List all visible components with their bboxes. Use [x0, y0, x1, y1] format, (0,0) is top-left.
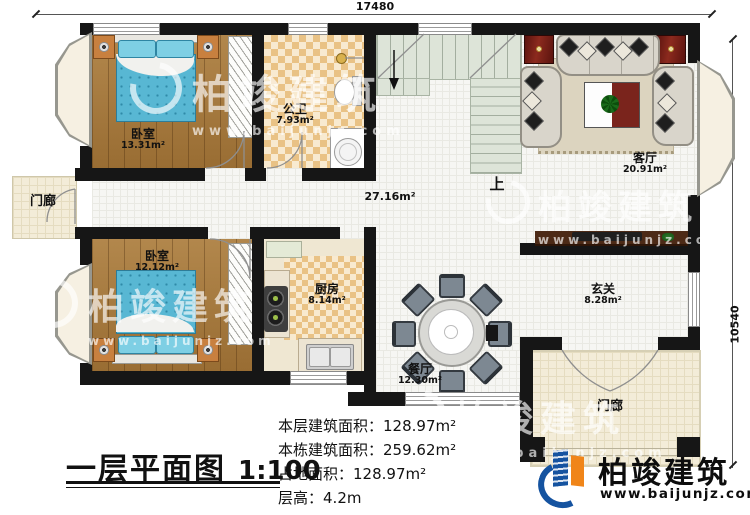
wall-pier — [486, 325, 498, 341]
fridge — [266, 241, 302, 258]
dining-table-center — [444, 325, 458, 339]
dimension-line-top — [35, 14, 712, 15]
stove-burner-icon — [267, 290, 284, 307]
side-table — [524, 35, 554, 64]
dining-chair — [439, 274, 465, 298]
washbasin-inner — [339, 143, 357, 161]
wall — [520, 337, 562, 350]
bay-window-bedroom2 — [55, 263, 92, 365]
stair-flight-left — [376, 78, 430, 96]
pillow — [156, 336, 194, 354]
room-label-hall-area: 27.16m² — [352, 191, 428, 203]
nightstand — [93, 35, 115, 59]
pillow — [118, 40, 156, 58]
brand-logo-icon — [538, 446, 594, 510]
room-label-porch-left: 门廊 — [13, 195, 73, 209]
room-label-bedroom2: 卧室12.12m² — [117, 250, 197, 274]
brand-url: www.baijunjz.com — [600, 486, 750, 502]
wall — [348, 392, 405, 406]
tv — [572, 232, 642, 241]
toilet-bowl — [334, 79, 355, 105]
lamp-icon — [201, 40, 215, 54]
nightstand — [197, 35, 219, 59]
wall — [252, 227, 264, 371]
dimension-tick — [708, 10, 716, 18]
wall — [347, 371, 376, 385]
logo-building-blue-icon — [553, 449, 568, 487]
floor-plan-page: 17480 10540 卧室13.31m² 公卫7.93m² 客厅20.91m²… — [0, 0, 750, 515]
title-underline — [66, 481, 280, 484]
room-label-dining: 餐厅12.30m² — [380, 363, 460, 387]
lamp-icon — [97, 40, 111, 54]
stove-burner-icon — [267, 309, 284, 326]
room-label-bathroom: 公卫7.93m² — [265, 103, 325, 127]
wall — [364, 23, 376, 181]
table-star-icon — [666, 44, 676, 54]
info-line: 层高：4.2m — [278, 486, 456, 510]
plant-icon — [662, 233, 674, 241]
wall — [520, 350, 533, 437]
area-info-block: 本层建筑面积：128.97m² 本栋建筑面积：259.62m² 占地面积：128… — [278, 414, 456, 510]
wall — [75, 227, 208, 239]
dining-chair — [392, 321, 416, 347]
stair-up-label: 上 — [483, 176, 511, 193]
bay-window-bedroom1 — [55, 32, 92, 148]
window — [405, 392, 520, 406]
shower-head-icon — [336, 53, 347, 64]
room-label-porch-bottom: 门廊 — [580, 400, 640, 414]
room-label-livingroom: 客厅20.91m² — [605, 152, 685, 176]
info-line: 本栋建筑面积：259.62m² — [278, 438, 456, 462]
window — [418, 23, 472, 35]
wall — [80, 23, 700, 35]
stair-flight-right — [470, 78, 522, 174]
title-underline — [66, 487, 280, 488]
room-label-kitchen: 厨房8.14m² — [287, 283, 367, 307]
pillow — [118, 336, 156, 354]
nightstand — [197, 338, 219, 362]
info-line: 占地面积：128.97m² — [278, 462, 456, 486]
sink-basin — [330, 347, 351, 367]
brand-logo: 柏竣建筑 www.baijunjz.com — [538, 446, 748, 512]
wall — [252, 23, 264, 181]
pillow — [156, 40, 194, 58]
table-star-icon — [534, 44, 544, 54]
wall — [688, 327, 700, 350]
wall — [80, 371, 290, 385]
info-line: 本层建筑面积：128.97m² — [278, 414, 456, 438]
wall — [75, 168, 205, 181]
wardrobe — [228, 243, 254, 345]
dimension-right-value: 10540 — [729, 290, 742, 360]
window — [288, 23, 328, 35]
wall — [80, 146, 92, 170]
room-label-bedroom1: 卧室13.31m² — [103, 128, 183, 152]
side-table — [656, 35, 686, 64]
window — [688, 272, 700, 327]
stair-landing — [376, 32, 522, 80]
plant-icon — [601, 95, 619, 113]
bed-headboard — [112, 354, 202, 364]
wall — [688, 23, 700, 63]
nightstand — [93, 338, 115, 362]
wall — [688, 195, 700, 272]
bay-window-livingroom — [697, 60, 735, 197]
wall — [80, 239, 92, 265]
window — [93, 23, 160, 35]
logo-building-orange-icon — [571, 455, 584, 487]
lamp-icon — [201, 343, 215, 357]
lamp-icon — [97, 343, 111, 357]
room-label-foyer: 玄关8.28m² — [563, 283, 643, 307]
sink-basin — [309, 347, 330, 367]
window — [290, 371, 347, 385]
wardrobe — [228, 36, 254, 138]
dimension-tick — [729, 35, 737, 43]
dimension-top-value: 17480 — [340, 0, 410, 13]
